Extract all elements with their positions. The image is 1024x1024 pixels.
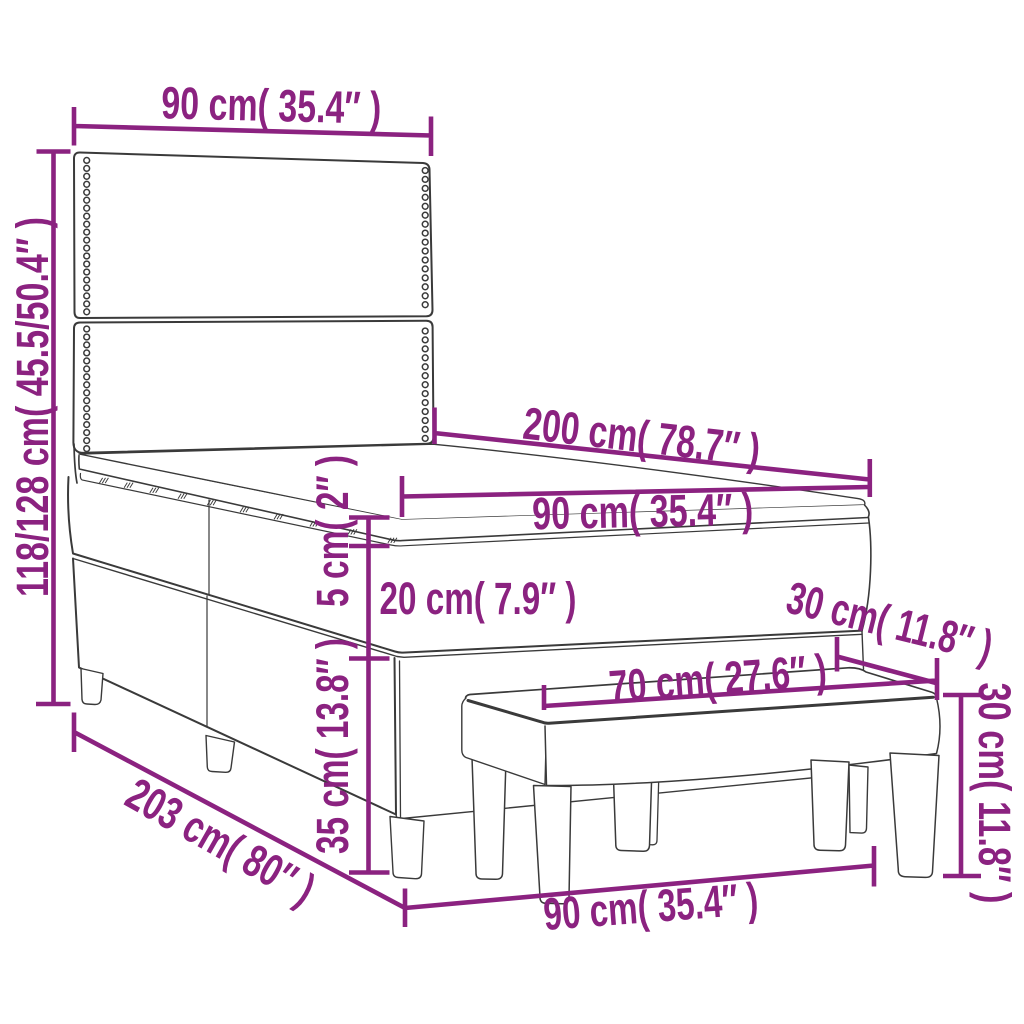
svg-text:90 cm( 35.4″ ): 90 cm( 35.4″ ) <box>532 484 754 540</box>
svg-text:5 cm( 2″ ): 5 cm( 2″ ) <box>307 455 358 607</box>
svg-text:118/128 cm( 45.5/50.4″ ): 118/128 cm( 45.5/50.4″ ) <box>7 217 58 597</box>
svg-text:30 cm( 11.8″ ): 30 cm( 11.8″ ) <box>969 683 1020 904</box>
svg-text:90 cm( 35.4″ ): 90 cm( 35.4″ ) <box>161 77 382 133</box>
svg-text:35 cm( 13.8″ ): 35 cm( 13.8″ ) <box>307 638 358 854</box>
svg-text:20 cm( 7.9″ ): 20 cm( 7.9″ ) <box>380 573 577 624</box>
